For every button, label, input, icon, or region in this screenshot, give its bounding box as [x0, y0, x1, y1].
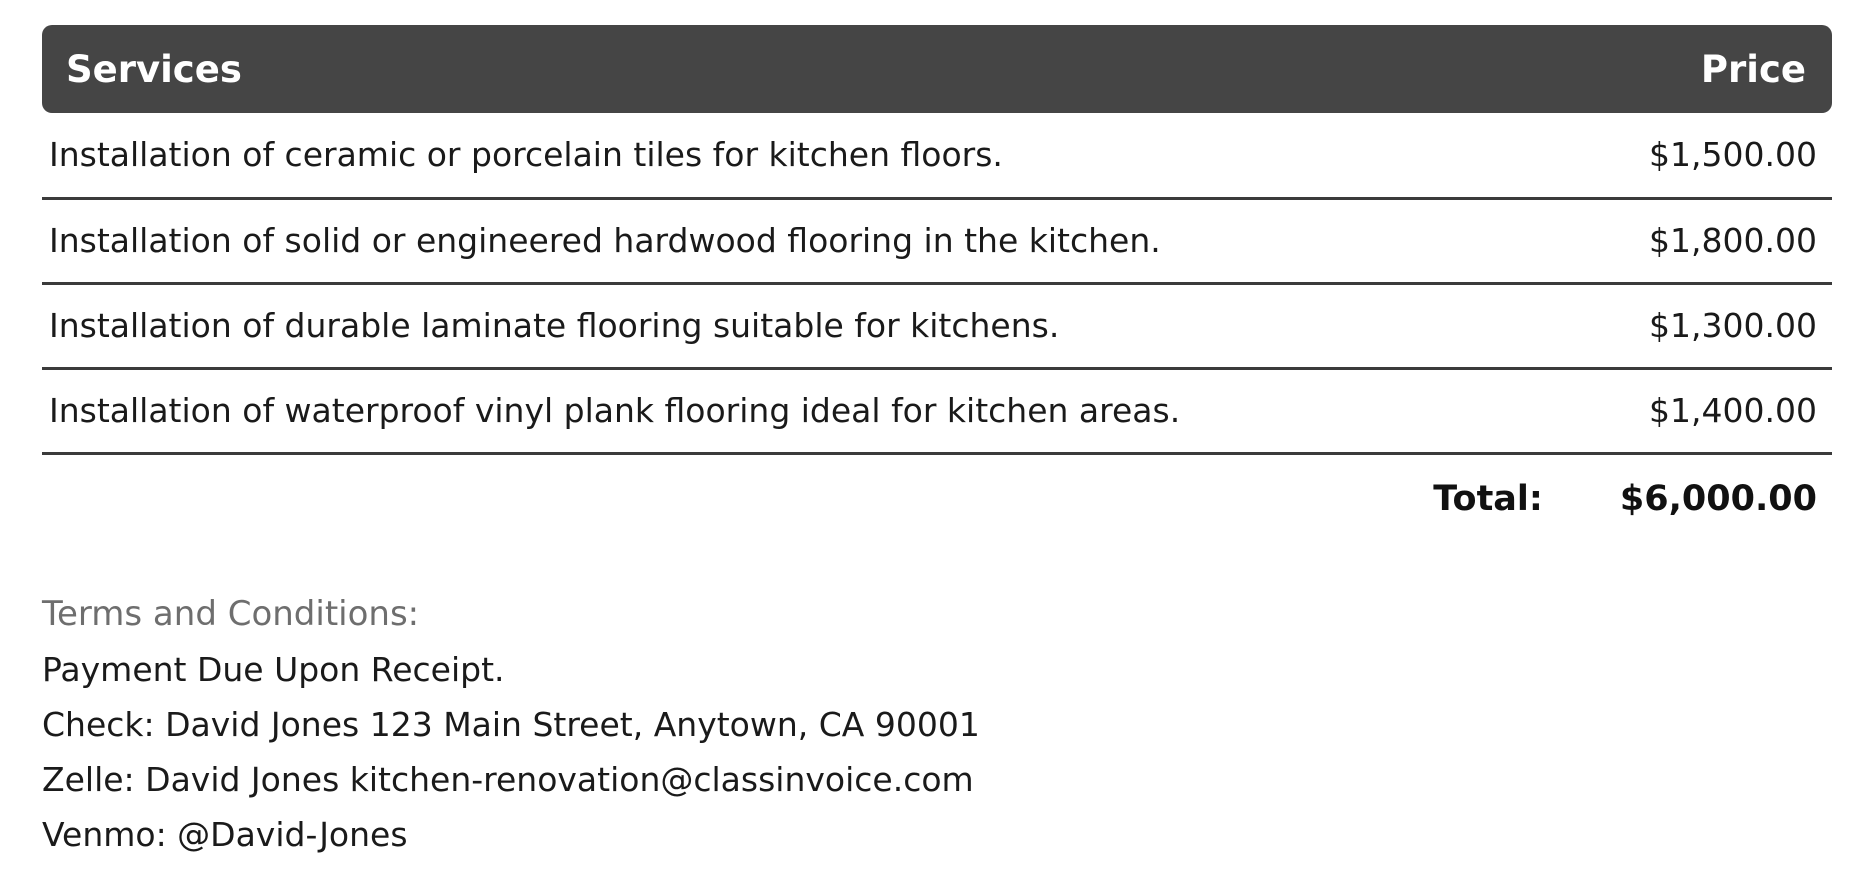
services-table: Installation of ceramic or porcelain til… — [42, 113, 1832, 455]
invoice-page: Services Price Installation of ceramic o… — [0, 0, 1868, 862]
service-price: $1,500.00 — [1567, 113, 1832, 198]
service-price: $1,300.00 — [1567, 283, 1832, 368]
table-row: Installation of waterproof vinyl plank f… — [42, 368, 1832, 453]
service-description: Installation of ceramic or porcelain til… — [42, 113, 1567, 198]
service-price: $1,800.00 — [1567, 198, 1832, 283]
terms-line-venmo: Venmo: @David-Jones — [42, 807, 1832, 862]
terms-title: Terms and Conditions: — [42, 587, 1832, 642]
terms-line-zelle: Zelle: David Jones kitchen-renovation@cl… — [42, 752, 1832, 807]
service-description: Installation of durable laminate floorin… — [42, 283, 1567, 368]
terms-line-check: Check: David Jones 123 Main Street, Anyt… — [42, 697, 1832, 752]
table-row: Installation of ceramic or porcelain til… — [42, 113, 1832, 198]
service-price: $1,400.00 — [1567, 368, 1832, 453]
services-table-body: Installation of ceramic or porcelain til… — [42, 113, 1832, 453]
total-row: Total: $6,000.00 — [42, 455, 1832, 543]
services-column-header: Services — [66, 48, 242, 91]
total-value: $6,000.00 — [1620, 479, 1817, 519]
service-description: Installation of waterproof vinyl plank f… — [42, 368, 1567, 453]
service-description: Installation of solid or engineered hard… — [42, 198, 1567, 283]
terms-section: Terms and Conditions: Payment Due Upon R… — [42, 587, 1832, 862]
table-row: Installation of solid or engineered hard… — [42, 198, 1832, 283]
price-column-header: Price — [1701, 48, 1806, 91]
table-header-bar: Services Price — [42, 25, 1832, 113]
terms-line-payment: Payment Due Upon Receipt. — [42, 642, 1832, 697]
table-row: Installation of durable laminate floorin… — [42, 283, 1832, 368]
total-label: Total: — [1433, 479, 1543, 519]
